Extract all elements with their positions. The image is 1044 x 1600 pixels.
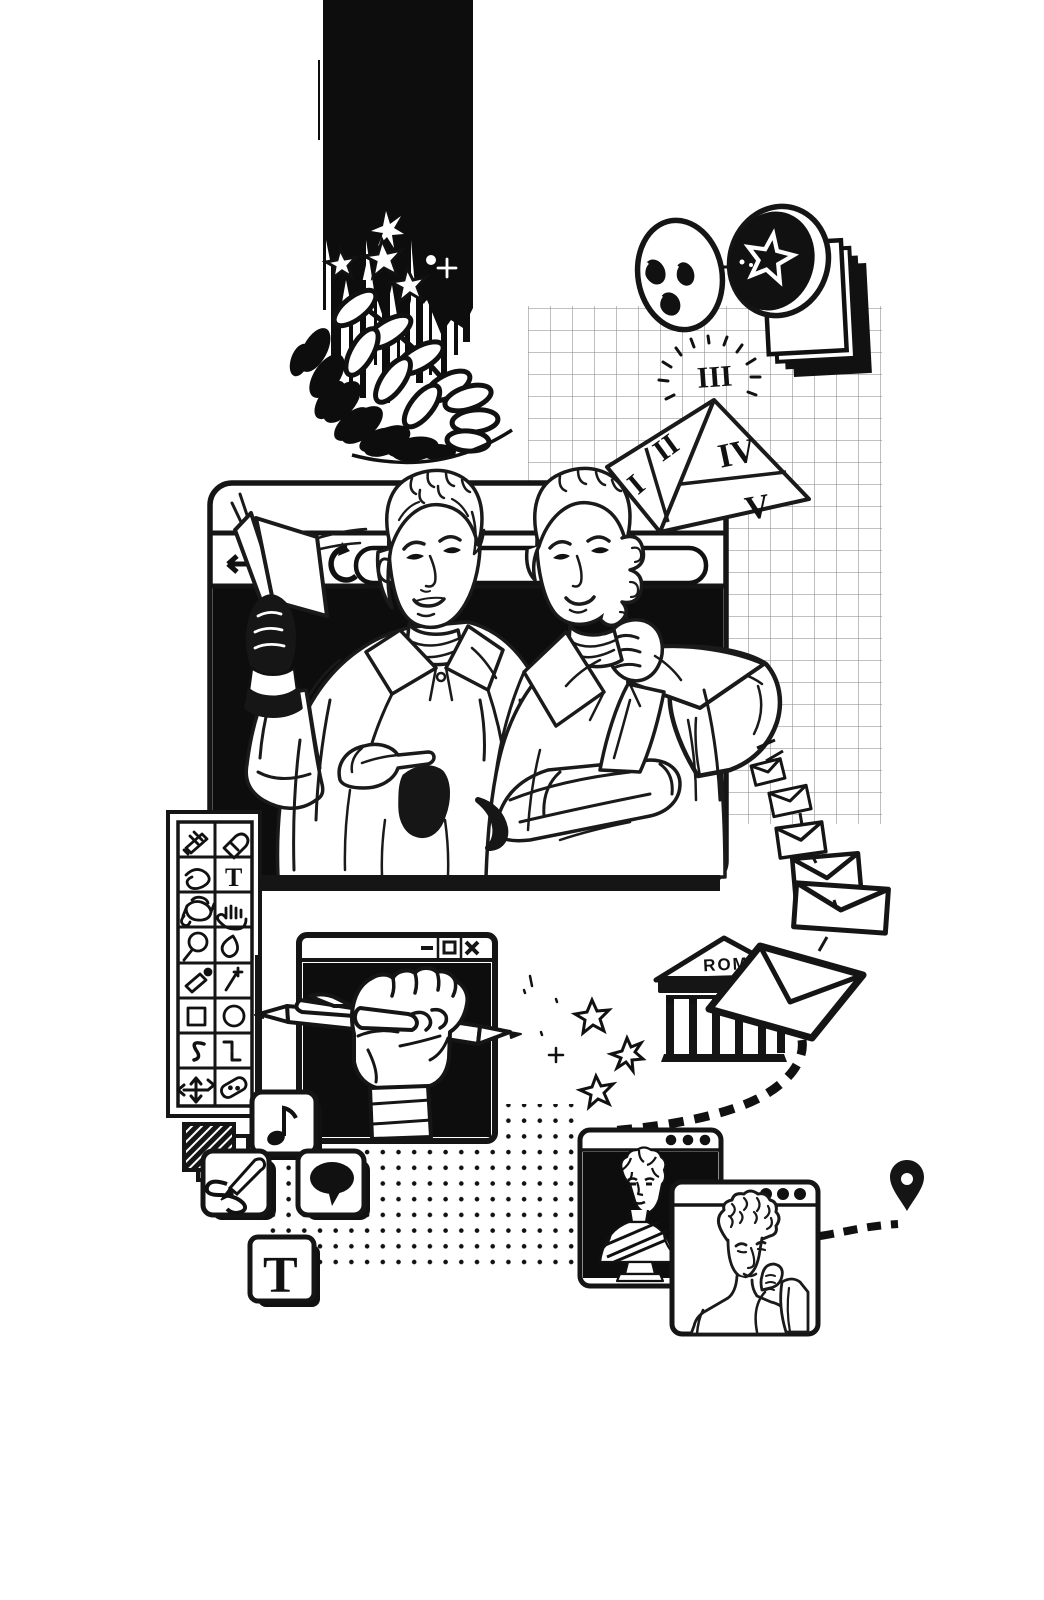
svg-text:T: T — [225, 863, 242, 892]
svg-text:IV: IV — [715, 432, 760, 476]
svg-text:III: III — [696, 359, 733, 394]
svg-text:T: T — [263, 1247, 298, 1304]
